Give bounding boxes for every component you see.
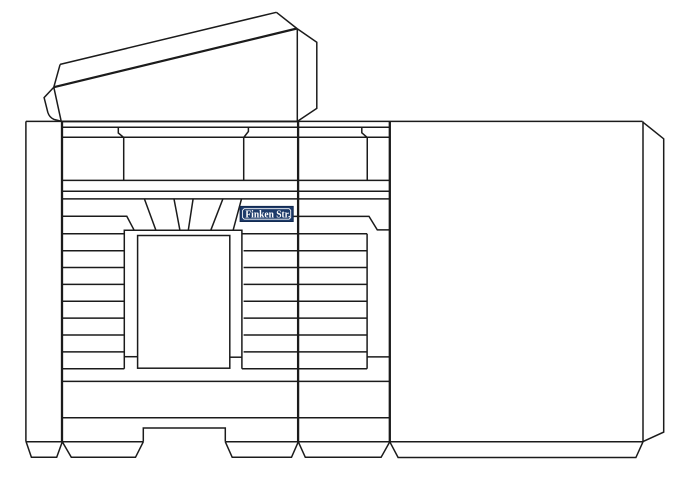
svg-text:Finken Str.: Finken Str. — [245, 209, 290, 221]
